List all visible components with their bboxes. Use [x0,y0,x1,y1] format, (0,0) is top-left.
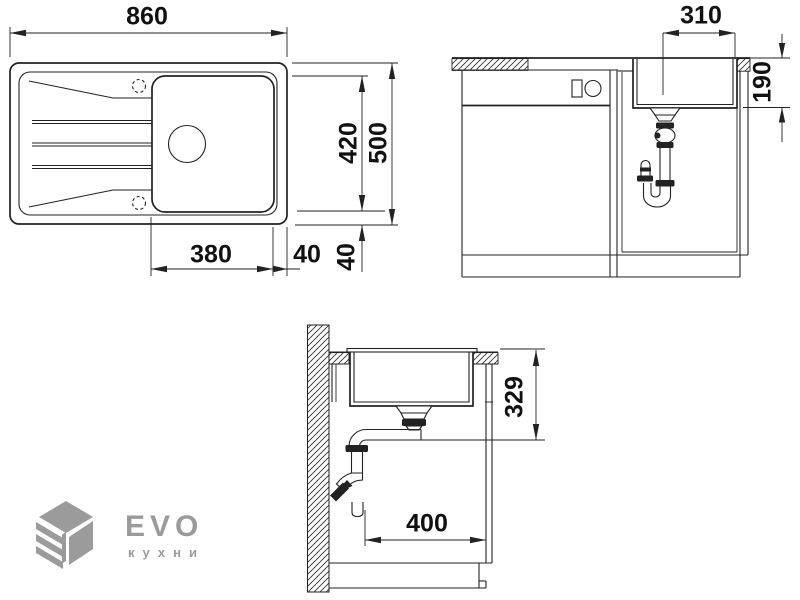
drainboard-grooves [29,81,152,207]
dim-side-drain-depth-label: 329 [503,376,528,418]
tap-hole-bottom [133,197,146,210]
front-counter-hatch-left [452,59,528,71]
dim-overall-width-label: 860 [126,5,168,30]
drawer-knob [585,81,601,97]
drain-hole [169,126,206,163]
dim-overall-depth-label: 500 [367,122,392,164]
side-view-drawing [308,325,546,592]
side-sink-rim [347,349,477,353]
side-bowl-section [350,352,473,406]
drawer-vent [572,80,582,97]
side-drain-trap [330,406,432,517]
dim-front-bowl-depth-label: 190 [751,61,776,103]
dim-bowl-side-offset-label: 40 [293,243,321,268]
logo-brand-text: EVO [125,512,203,542]
technical-drawing-page: 860 420 500 380 40 40 310 190 329 400 EV… [0,0,800,600]
dim-side-drain-offset-label: 400 [406,512,448,537]
front-drain-trap [637,108,680,207]
dim-front-bowl-width-label: 310 [680,4,722,29]
drawing-canvas [0,0,800,600]
dim-bowl-bottom-offset-label: 40 [335,243,360,271]
front-bowl-section [633,59,737,108]
dim-inner-depth-label: 420 [337,122,362,164]
front-cabinet [462,70,748,277]
sink-bowl-plan [152,76,274,212]
wall-hatch [308,325,330,592]
dim-bowl-width-label: 380 [190,243,232,268]
evo-logo-icon [36,501,93,569]
logo-subtitle-text: кухни [128,546,205,559]
front-view-drawing [452,30,790,277]
tap-hole-top [133,80,146,93]
